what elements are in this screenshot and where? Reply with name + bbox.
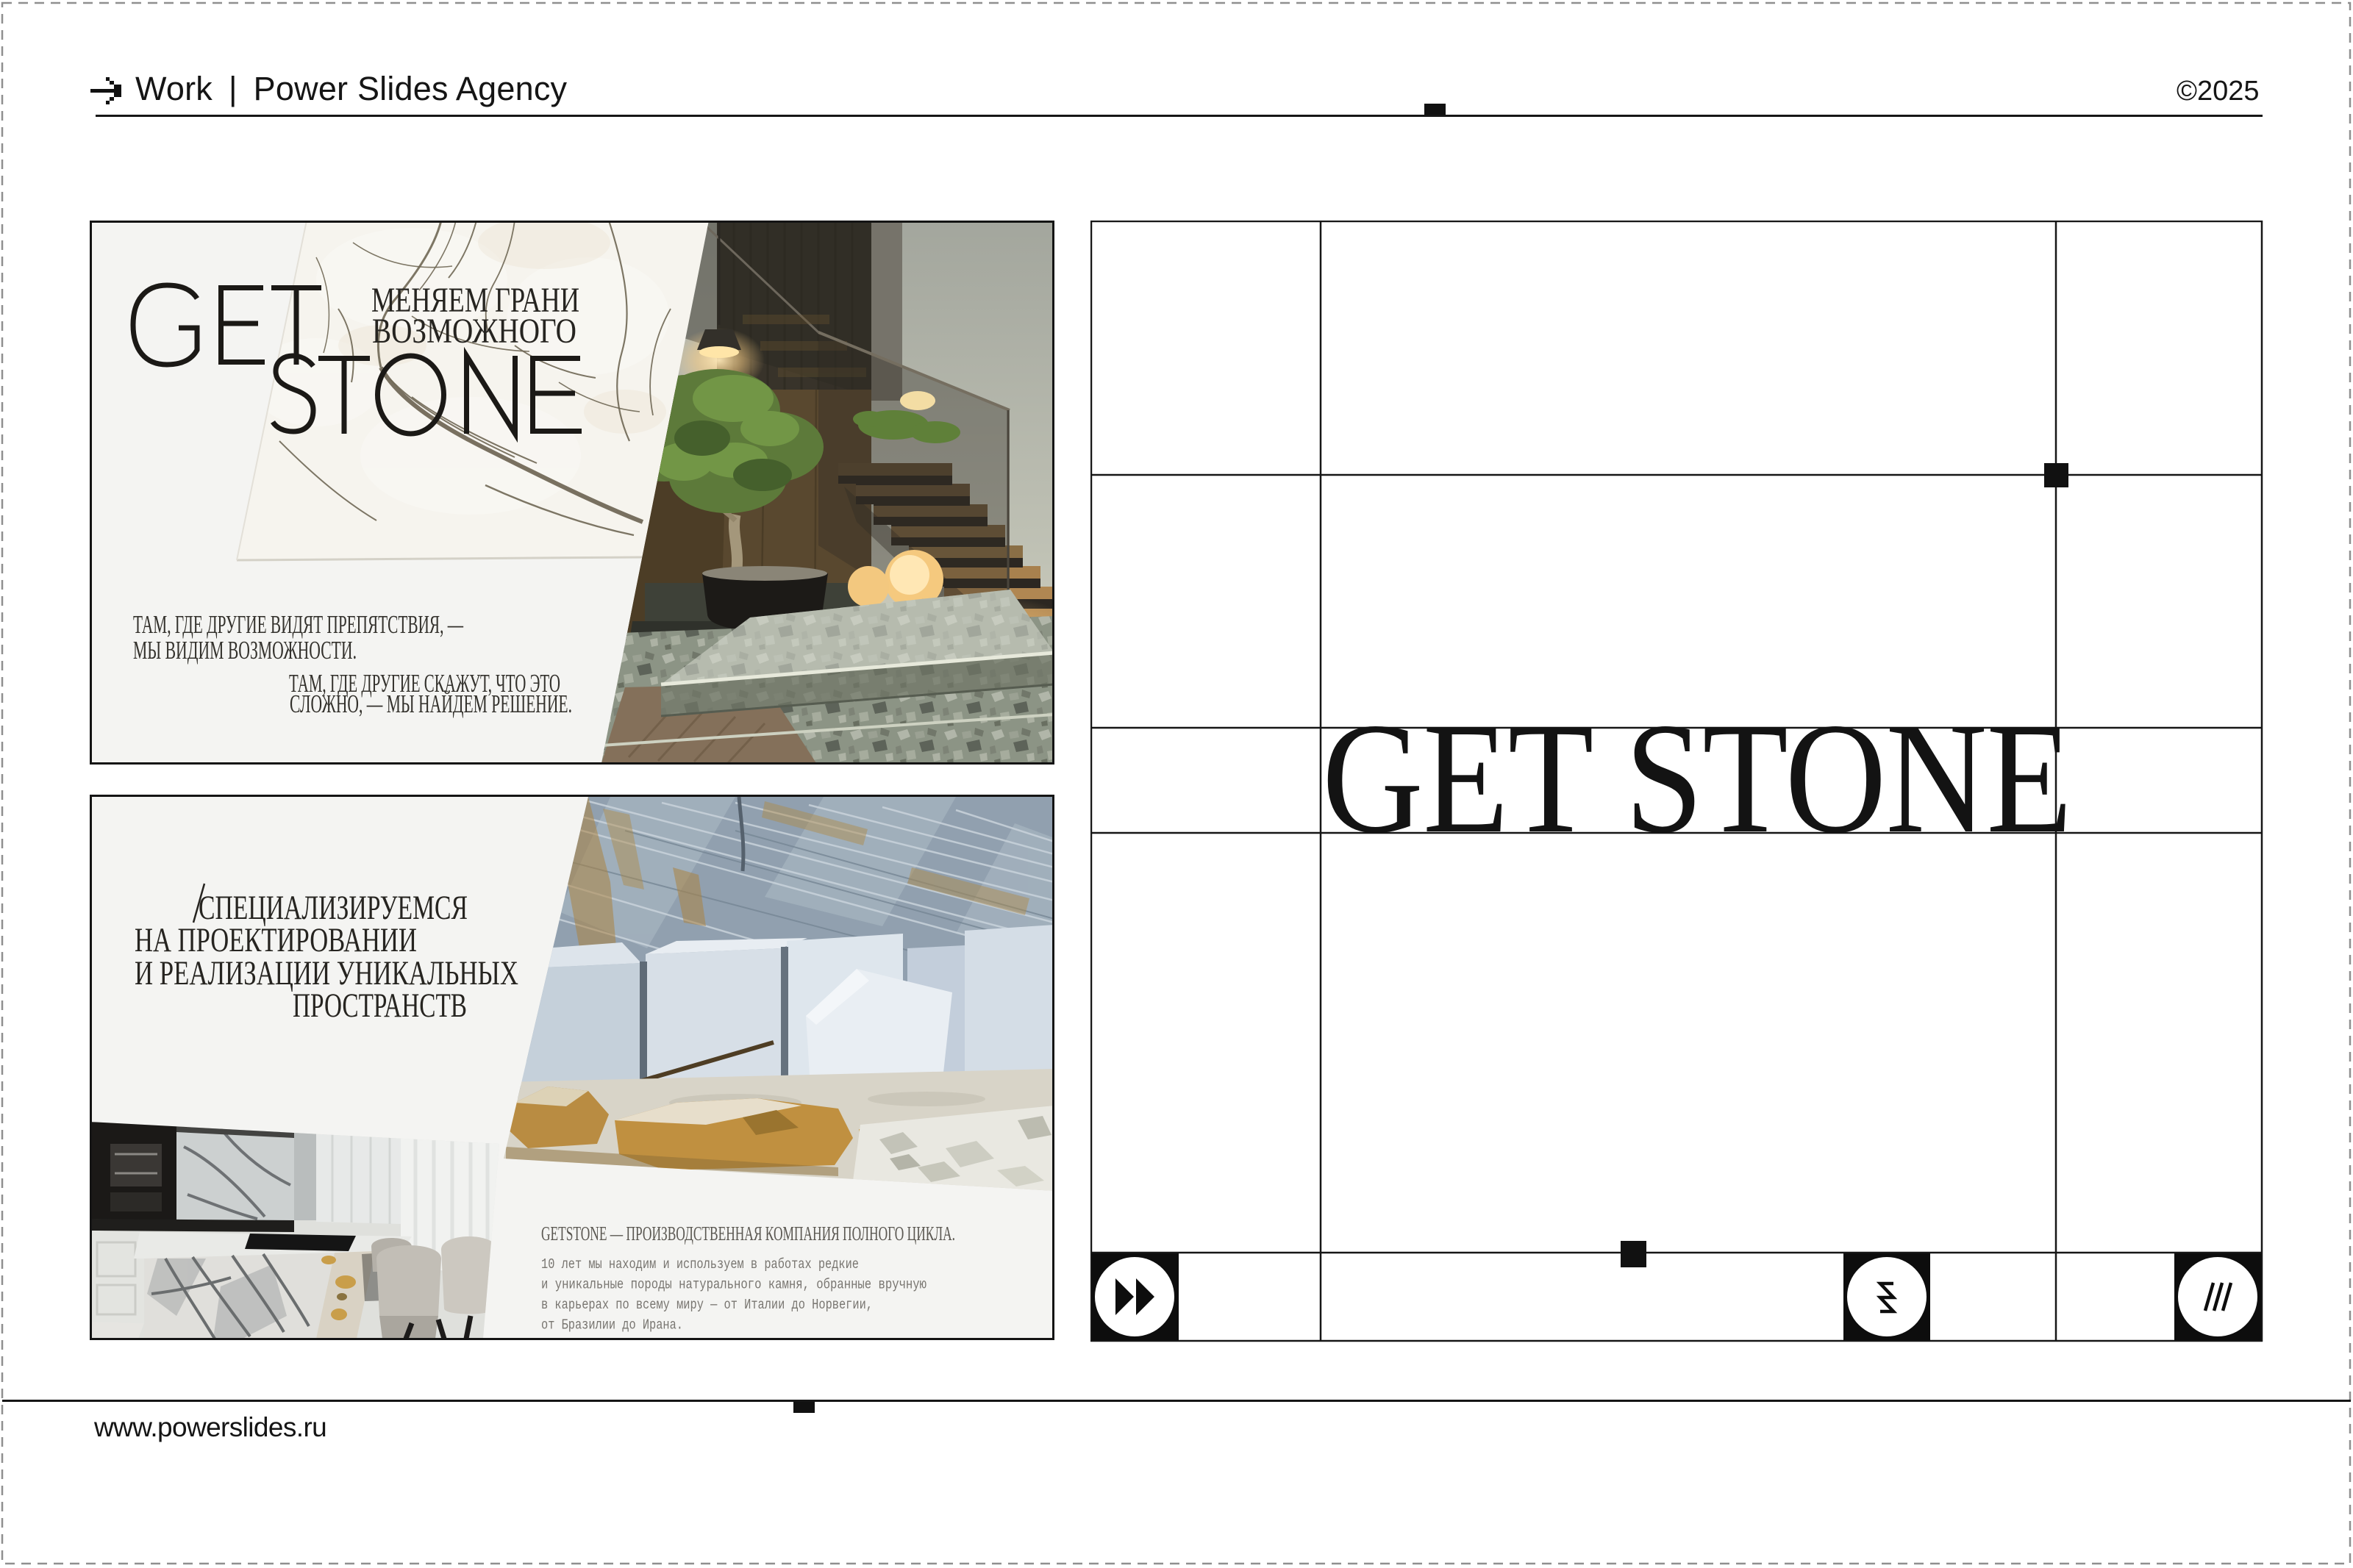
svg-text:СЛОЖНО, — МЫ НАЙДЕМ РЕШЕНИЕ.: СЛОЖНО, — МЫ НАЙДЕМ РЕШЕНИЕ. (290, 690, 572, 718)
svg-text:ПРОСТРАНСТВ: ПРОСТРАНСТВ (293, 987, 467, 1025)
svg-text:МЫ ВИДИМ ВОЗМОЖНОСТИ.: МЫ ВИДИМ ВОЗМОЖНОСТИ. (133, 636, 357, 665)
svg-text:от Бразилии до Ирана.: от Бразилии до Ирана. (541, 1317, 683, 1333)
svg-text:GETSTONE — ПРОИЗВОДСТВЕННАЯ КО: GETSTONE — ПРОИЗВОДСТВЕННАЯ КОМПАНИЯ ПОЛ… (541, 1222, 955, 1245)
svg-text:10 лет мы находим и используем: 10 лет мы находим и используем в работах… (541, 1256, 859, 1272)
svg-text:ТАМ, ГДЕ ДРУГИЕ ВИДЯТ ПРЕПЯТСТ: ТАМ, ГДЕ ДРУГИЕ ВИДЯТ ПРЕПЯТСТВИЯ, — (133, 610, 464, 639)
svg-text:ВОЗМОЖНОГО: ВОЗМОЖНОГО (372, 312, 576, 351)
svg-text:и уникальные породы натурально: и уникальные породы натурального камня, … (541, 1277, 926, 1293)
svg-text:в карьерах по всему миру — от: в карьерах по всему миру — от Италии до … (541, 1297, 873, 1313)
